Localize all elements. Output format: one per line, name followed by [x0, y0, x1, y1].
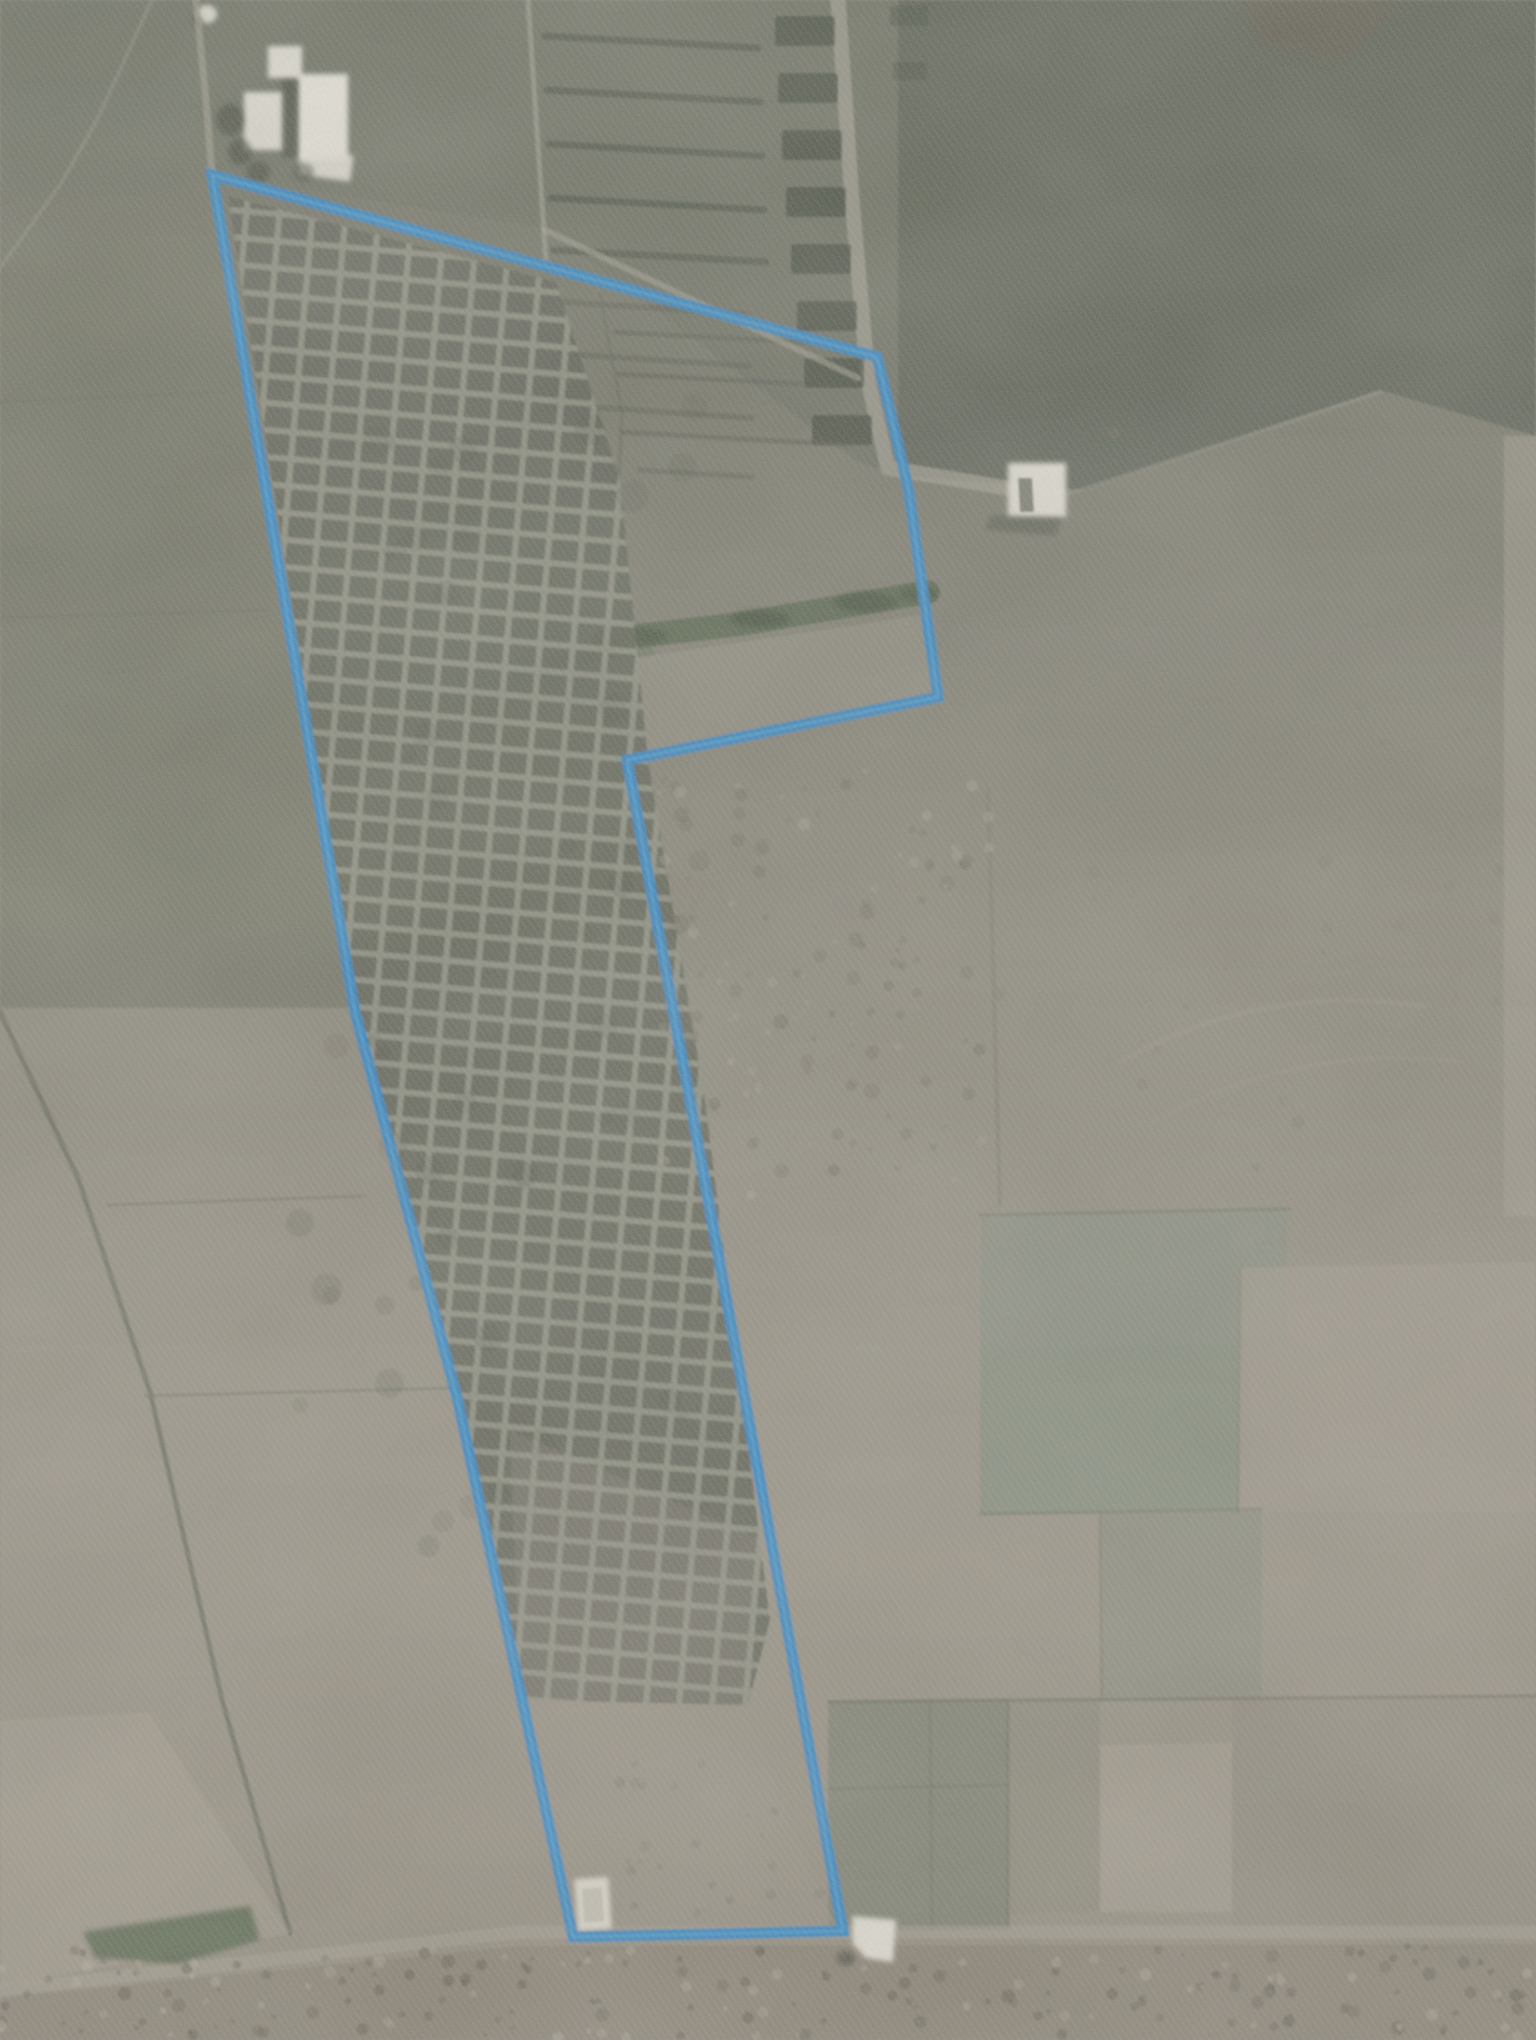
- aerial-photo-canvas: [0, 0, 1536, 2040]
- scanned-aerial-photo: [0, 0, 1536, 2040]
- photo-grain-overlay: [0, 0, 1536, 2040]
